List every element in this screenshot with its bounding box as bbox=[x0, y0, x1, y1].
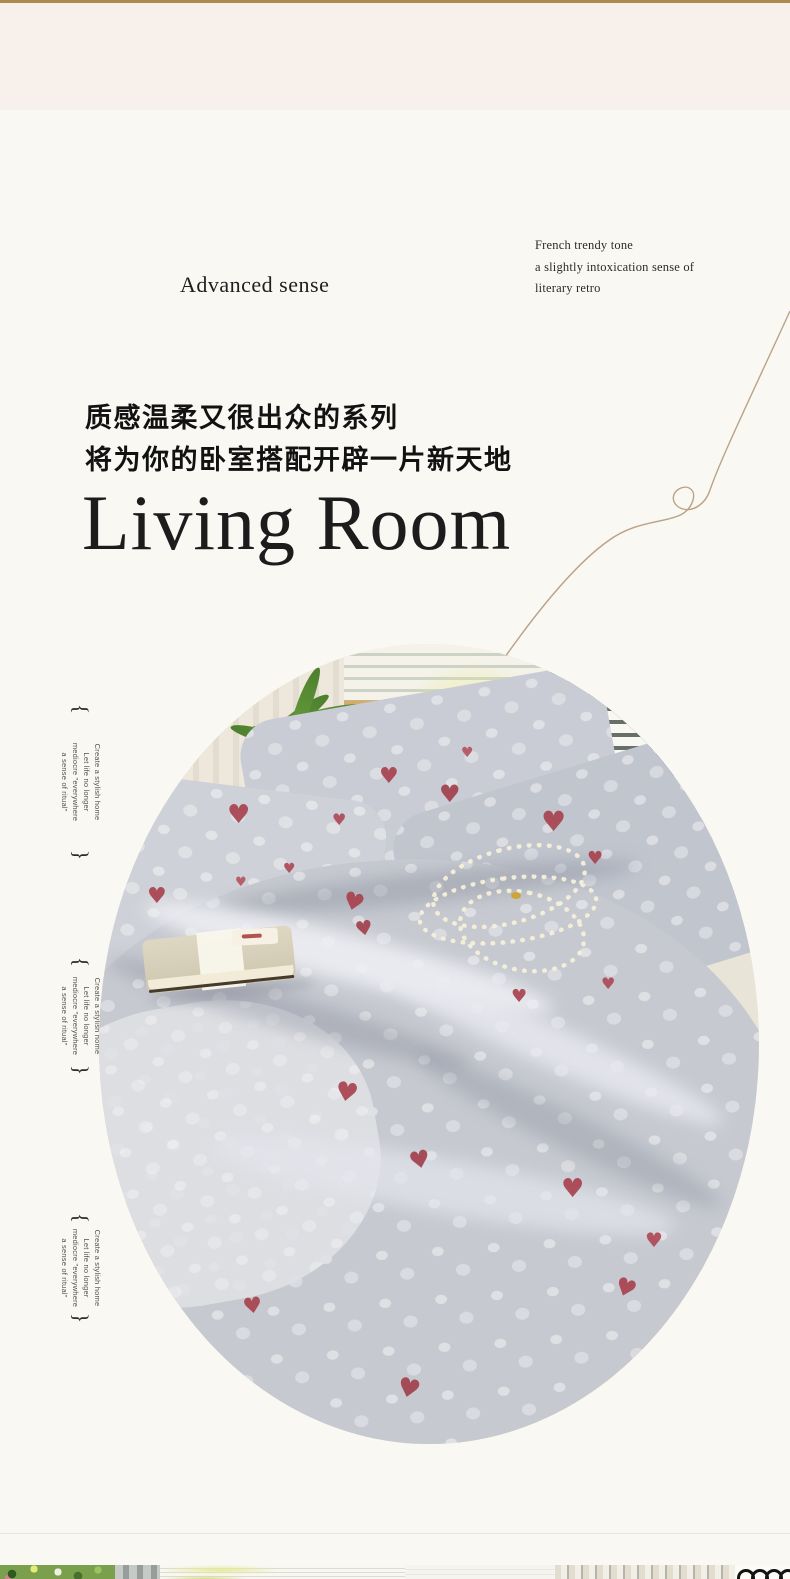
necklace-clasp bbox=[511, 892, 521, 899]
side-note-marker: { Create a stylish home Let life no long… bbox=[56, 954, 104, 1078]
strip-foliage bbox=[0, 1565, 115, 1579]
heart-icon: ♥ bbox=[283, 862, 296, 876]
scallop-pattern bbox=[737, 1569, 790, 1579]
tagline-line: literary retro bbox=[535, 278, 765, 300]
side-note-text: Create a stylish home Let life no longer… bbox=[58, 726, 102, 838]
side-note-text: Create a stylish home Let life no longer… bbox=[58, 960, 102, 1072]
tagline-line: a slightly intoxication sense of bbox=[535, 257, 765, 279]
heart-icon: ♥ bbox=[645, 1230, 663, 1250]
heart-icon: ♥ bbox=[333, 1078, 360, 1108]
strip-scallop-fabric bbox=[735, 1565, 790, 1579]
strip-blinds bbox=[160, 1565, 405, 1579]
heart-icon: ♥ bbox=[439, 782, 461, 806]
heart-icon: ♥ bbox=[379, 766, 399, 788]
curly-bracket-close-icon: } bbox=[72, 1065, 88, 1075]
side-note-text: Create a stylish home Let life no longer… bbox=[58, 1212, 102, 1324]
heart-icon: ♥ bbox=[147, 886, 167, 908]
heart-icon: ♥ bbox=[461, 746, 474, 760]
brand-word: Advanced sense bbox=[180, 272, 420, 298]
product-detail-section: Advanced sense French trendy tone a slig… bbox=[0, 0, 790, 1579]
heart-icon: ♥ bbox=[601, 976, 615, 992]
section-divider bbox=[0, 1533, 790, 1534]
curly-bracket-close-icon: } bbox=[72, 1313, 88, 1323]
curly-bracket-close-icon: } bbox=[72, 850, 88, 860]
heart-icon: ♥ bbox=[541, 808, 566, 836]
bedding-lifestyle-photo: ♥ ♥ ♥ ♥ ♥ ♥ ♥ ♥ ♥ ♥ ♥ ♥ ♥ ♥ ♥ ♥ ♥ ♥ ♥ ♥ … bbox=[99, 644, 759, 1444]
heart-icon: ♥ bbox=[227, 802, 250, 828]
heart-icon: ♥ bbox=[235, 876, 247, 889]
swash-curl-decoration bbox=[480, 300, 790, 662]
heart-icon: ♥ bbox=[242, 1295, 265, 1320]
strip-striped-curtain bbox=[555, 1565, 735, 1579]
side-note-marker: { Create a stylish home Let life no long… bbox=[56, 701, 104, 863]
strip-wall bbox=[405, 1565, 555, 1579]
heart-icon: ♥ bbox=[561, 1176, 584, 1202]
heart-icon: ♥ bbox=[407, 1146, 433, 1174]
strip-curtain-fold bbox=[115, 1565, 160, 1579]
side-note-marker: { Create a stylish home Let life no long… bbox=[56, 1210, 104, 1326]
heart-icon: ♥ bbox=[511, 988, 527, 1006]
heart-icon: ♥ bbox=[587, 850, 603, 868]
heart-icon: ♥ bbox=[332, 812, 346, 828]
tagline-line: French trendy tone bbox=[535, 235, 765, 257]
next-photo-strip bbox=[0, 1565, 790, 1579]
heart-icon: ♥ bbox=[353, 917, 374, 940]
tagline: French trendy tone a slightly intoxicati… bbox=[535, 235, 765, 300]
top-band bbox=[0, 3, 790, 110]
curly-bracket-open-icon: { bbox=[72, 704, 88, 714]
